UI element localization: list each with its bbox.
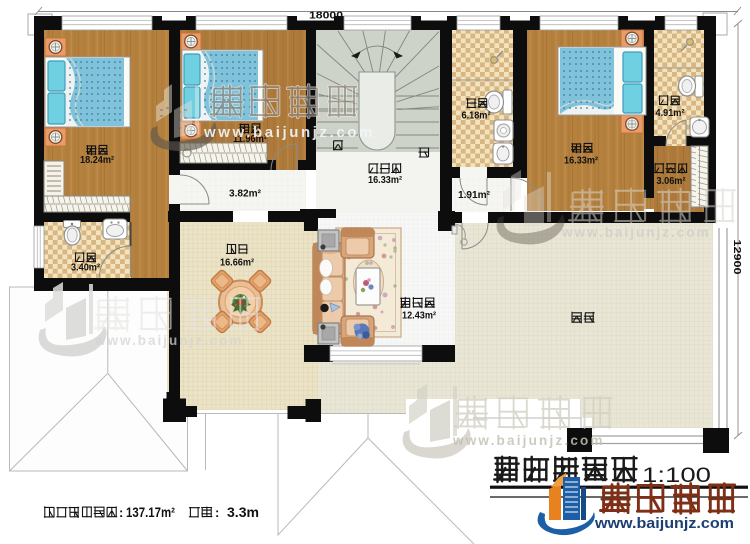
svg-text:3.3m: 3.3m xyxy=(227,504,259,520)
svg-text:4.91m²: 4.91m² xyxy=(656,108,686,119)
svg-text:3.82m²: 3.82m² xyxy=(229,188,261,200)
svg-text:12.43m²: 12.43m² xyxy=(402,311,437,322)
svg-text:www.baijunjz.com: www.baijunjz.com xyxy=(452,433,605,448)
svg-text:137.17m²: 137.17m² xyxy=(126,504,175,520)
svg-text:www.baijunjz.com: www.baijunjz.com xyxy=(94,333,244,348)
svg-text:www.baijunjz.com: www.baijunjz.com xyxy=(203,124,375,141)
svg-text:www.baijunjz.com: www.baijunjz.com xyxy=(594,515,734,532)
svg-text::: : xyxy=(215,505,219,520)
svg-text:6.18m²: 6.18m² xyxy=(462,111,492,122)
svg-text::: : xyxy=(119,505,123,520)
svg-text:16.33m²: 16.33m² xyxy=(564,156,599,167)
svg-text:18000: 18000 xyxy=(309,10,343,22)
svg-text:3.06m²: 3.06m² xyxy=(657,176,687,187)
svg-text:www.baijunjz.com: www.baijunjz.com xyxy=(561,225,711,240)
svg-text:12900: 12900 xyxy=(731,240,743,275)
svg-text:1.91m²: 1.91m² xyxy=(458,189,490,201)
svg-text:16.66m²: 16.66m² xyxy=(220,258,255,269)
svg-text:3.40m²: 3.40m² xyxy=(71,263,101,274)
svg-text:16.33m²: 16.33m² xyxy=(368,175,403,186)
svg-text:18.24m²: 18.24m² xyxy=(80,155,115,166)
